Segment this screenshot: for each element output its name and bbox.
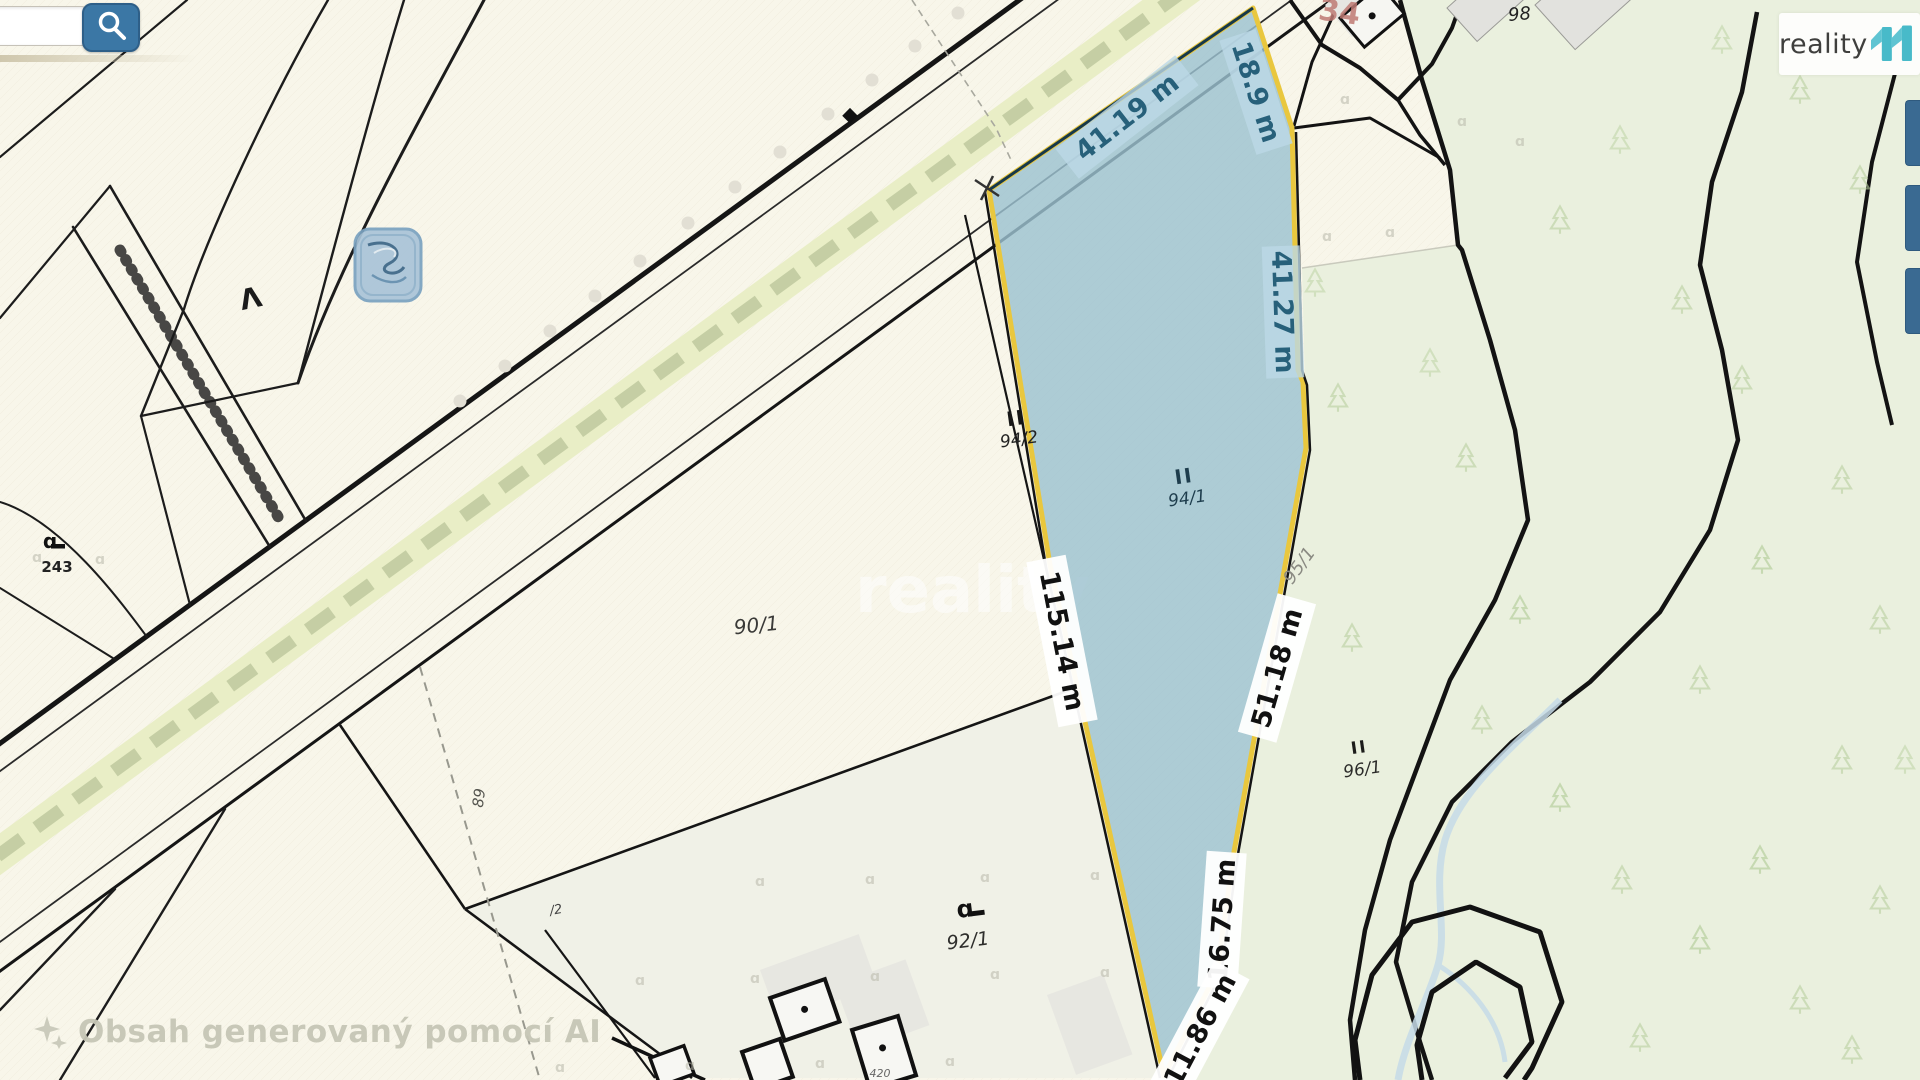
map-tool-tab-3[interactable]	[1905, 268, 1920, 334]
svg-text:ɑ: ɑ	[815, 1056, 825, 1072]
cadastral-map-screen: reality 41.19 m 18.9 m 41.27 m 115.14 m	[0, 0, 1920, 1080]
svg-text:ɑ: ɑ	[1385, 225, 1395, 241]
sparkle-icon	[34, 1015, 68, 1049]
parcel-number-98: 98	[1507, 3, 1532, 26]
svg-text:ɑ: ɑ	[865, 872, 875, 888]
parcel-number-243: 243	[41, 558, 72, 576]
svg-text:ɑ: ɑ	[945, 1054, 955, 1070]
svg-text:ɑ: ɑ	[955, 894, 975, 924]
reality11-logo: reality	[1779, 13, 1920, 75]
svg-text:ɑ: ɑ	[750, 971, 760, 987]
map-canvas[interactable]: reality 41.19 m 18.9 m 41.27 m 115.14 m	[0, 0, 1920, 1080]
map-tool-tab-2[interactable]	[1905, 185, 1920, 251]
svg-text:ɑ: ɑ	[1340, 92, 1350, 108]
svg-text:ɑ: ɑ	[1100, 965, 1110, 981]
search-icon	[94, 8, 130, 44]
usage-mark-94-1: II	[1173, 463, 1195, 489]
parcel-number-89: 89	[469, 787, 489, 808]
water-seal-symbol	[355, 229, 421, 301]
svg-text:ɑ: ɑ	[555, 1060, 565, 1076]
svg-text:ɑ: ɑ	[870, 969, 880, 985]
svg-text:ɑ: ɑ	[980, 870, 990, 886]
svg-text:ɑ: ɑ	[1322, 229, 1332, 245]
svg-text:ɑ: ɑ	[1515, 134, 1525, 150]
svg-text:ɑ: ɑ	[1090, 868, 1100, 884]
measure-east: 41.27 m	[1265, 250, 1300, 374]
parcel-number-2: /2	[548, 902, 564, 919]
svg-text:ɑ: ɑ	[755, 874, 765, 890]
search-input[interactable]	[0, 6, 90, 46]
logo-11-icon	[1871, 19, 1914, 69]
search-button[interactable]	[82, 3, 140, 52]
svg-text:ɑ: ɑ	[1457, 114, 1467, 130]
svg-text:ɑ: ɑ	[990, 967, 1000, 983]
map-tool-tab-1[interactable]	[1905, 100, 1920, 166]
parcel-number-90-1: 90/1	[733, 611, 780, 640]
usage-mark-94-2: II	[1005, 405, 1027, 431]
toolbar-shadow	[0, 55, 196, 62]
ai-content-notice: Obsah generovaný pomocí AI	[34, 1014, 601, 1050]
svg-text:ɑ: ɑ	[43, 529, 57, 553]
svg-text:ɑ: ɑ	[95, 552, 105, 568]
ai-notice-text: Obsah generovaný pomocí AI	[78, 1014, 601, 1050]
usage-mark-96-1: II	[1350, 737, 1369, 759]
parcel-number-420: 420	[870, 1067, 891, 1080]
svg-text:ɑ: ɑ	[32, 550, 42, 566]
logo-brand-text: reality	[1779, 29, 1868, 60]
svg-text:ɑ: ɑ	[685, 1058, 695, 1074]
parcel-number-34: 34	[1316, 0, 1362, 33]
svg-text:ɑ: ɑ	[635, 973, 645, 989]
